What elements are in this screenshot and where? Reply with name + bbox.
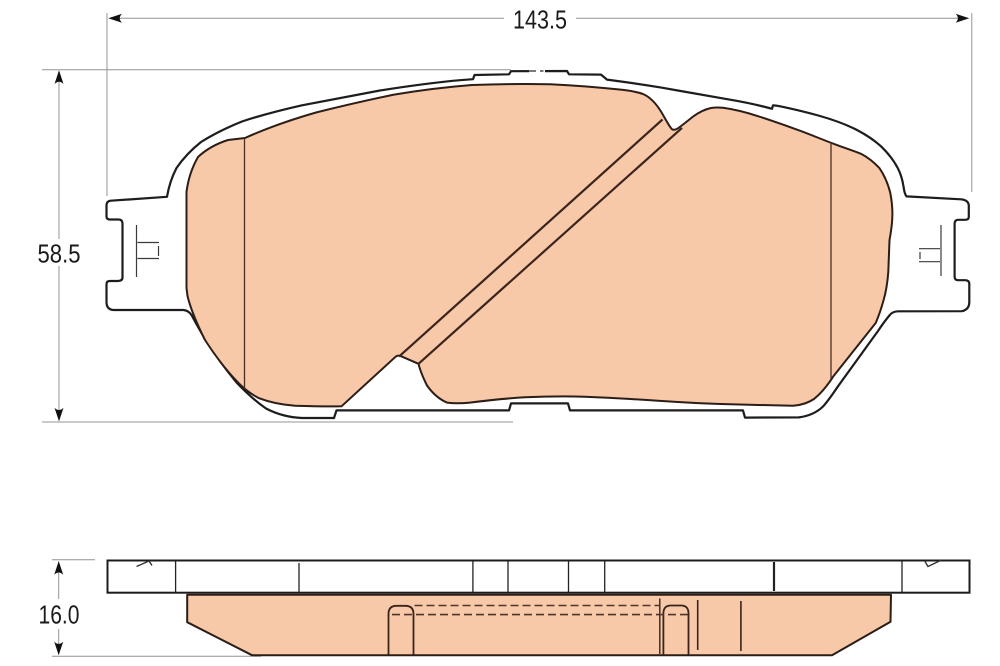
svg-text:143.5: 143.5 — [513, 5, 567, 35]
svg-text:16.0: 16.0 — [39, 600, 80, 630]
svg-text:58.5: 58.5 — [38, 239, 81, 269]
